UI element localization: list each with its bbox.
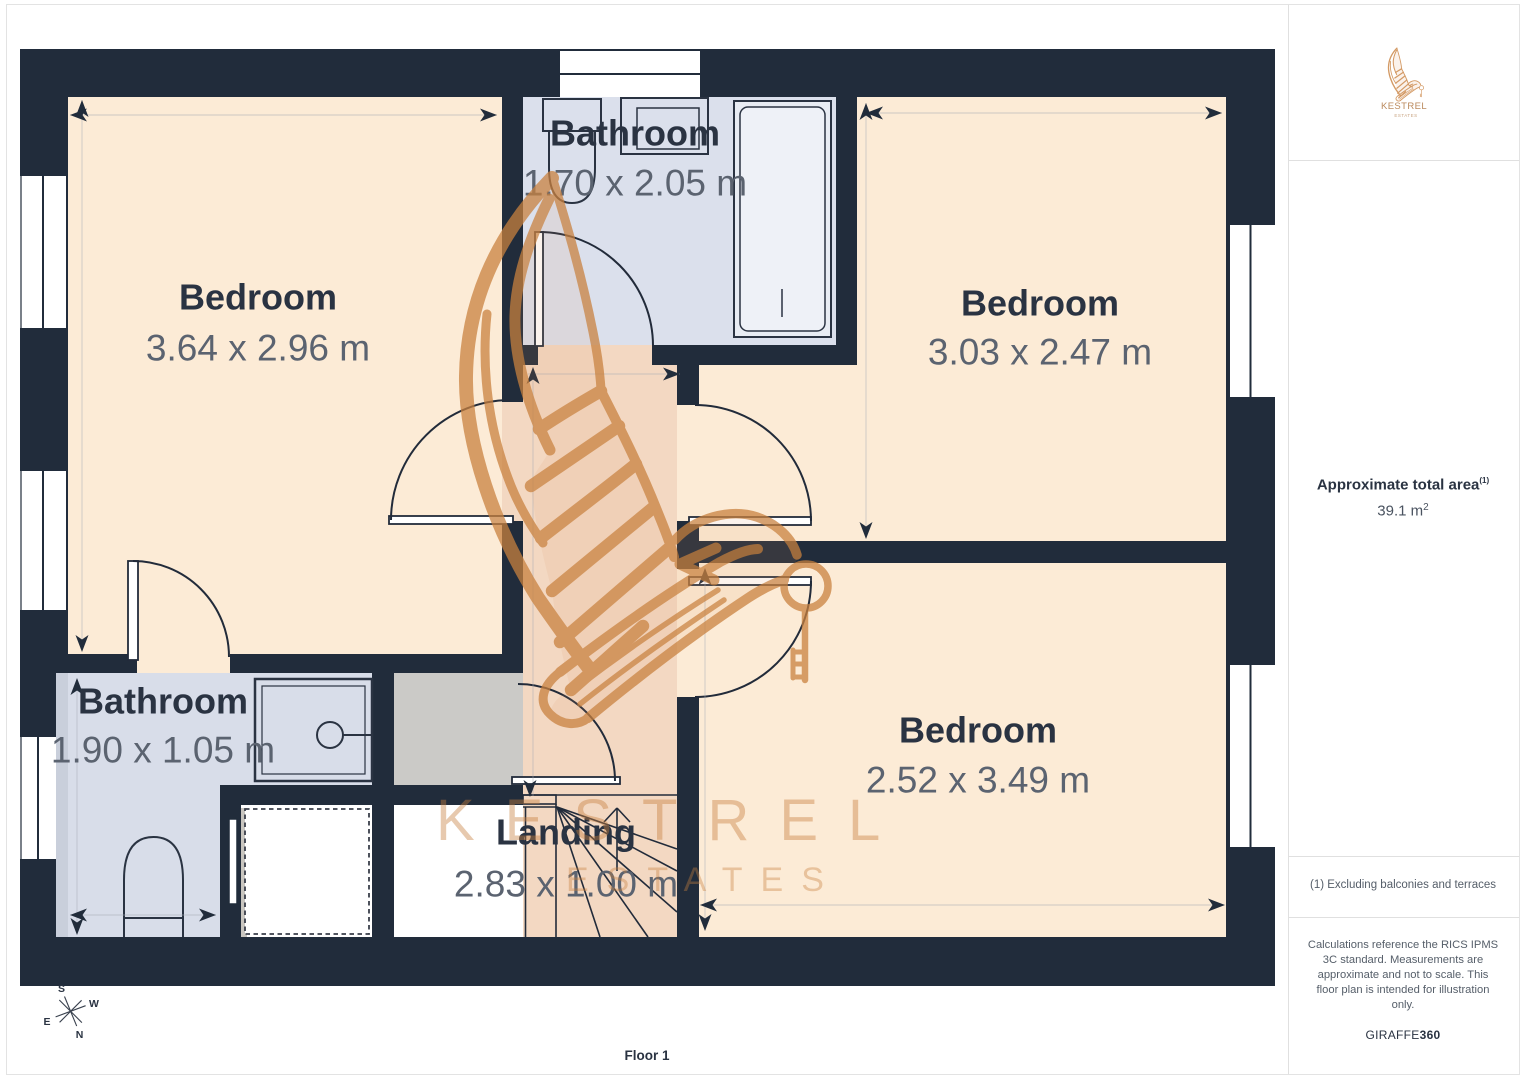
svg-text:only.: only. (1392, 999, 1415, 1011)
svg-text:Approximate total area(1): Approximate total area(1) (1317, 476, 1490, 494)
svg-text:(1) Excluding balconies and te: (1) Excluding balconies and terraces (1310, 879, 1496, 891)
svg-text:Floor 1: Floor 1 (624, 1048, 669, 1063)
svg-text:39.1 m2: 39.1 m2 (1377, 502, 1429, 520)
svg-text:S: S (58, 983, 65, 995)
svg-text:Bathroom: Bathroom (78, 681, 248, 722)
svg-text:Bedroom: Bedroom (961, 283, 1119, 324)
svg-text:floor plan is intended for ill: floor plan is intended for illustration (1317, 984, 1490, 996)
svg-text:W: W (89, 998, 99, 1010)
svg-text:Calculations reference the RIC: Calculations reference the RICS IPMS (1308, 939, 1498, 951)
svg-text:N: N (76, 1029, 84, 1041)
svg-text:approximate and not to scale.: approximate and not to scale. This (1318, 969, 1489, 981)
svg-text:Bathroom: Bathroom (550, 113, 720, 154)
svg-text:KESTREL: KESTREL (436, 788, 910, 853)
svg-text:3C standard. Measurements are: 3C standard. Measurements are (1323, 954, 1483, 966)
svg-text:Bedroom: Bedroom (179, 277, 337, 318)
svg-text:1.90 x 1.05 m: 1.90 x 1.05 m (51, 730, 275, 771)
svg-text:Bedroom: Bedroom (899, 710, 1057, 751)
svg-text:ESTATES: ESTATES (566, 861, 842, 899)
svg-text:ESTATES: ESTATES (1394, 113, 1417, 118)
svg-text:GIRAFFE360: GIRAFFE360 (1365, 1028, 1440, 1042)
svg-text:3.03 x 2.47 m: 3.03 x 2.47 m (928, 332, 1152, 373)
svg-text:3.64 x 2.96 m: 3.64 x 2.96 m (146, 328, 370, 369)
svg-text:E: E (43, 1016, 50, 1028)
svg-text:KESTREL: KESTREL (1381, 101, 1427, 112)
